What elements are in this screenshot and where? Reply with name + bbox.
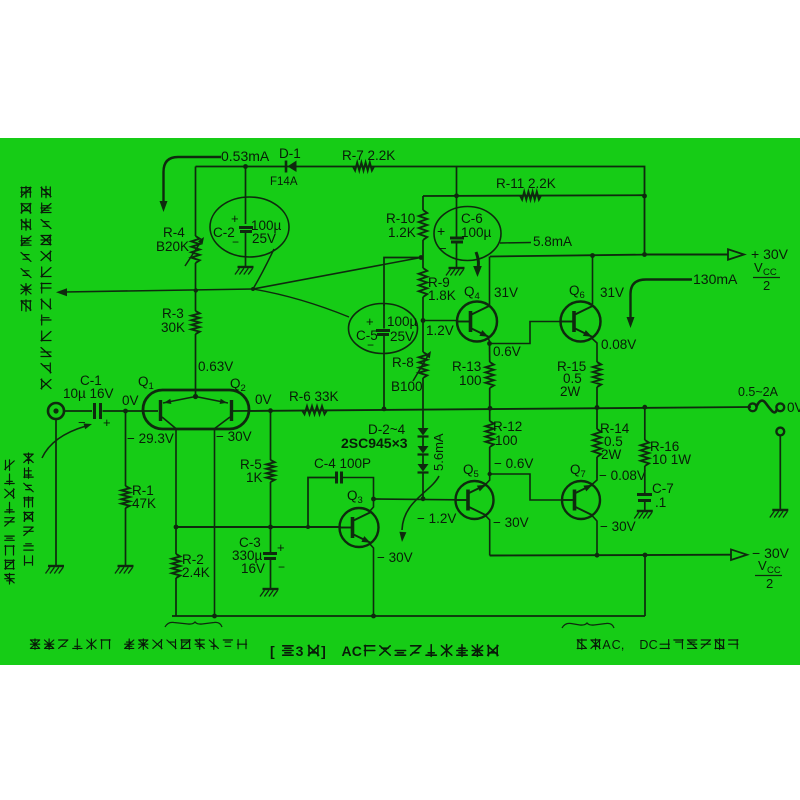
svg-text:+: + (103, 415, 111, 430)
svg-text:− 0.08V: − 0.08V (599, 468, 646, 483)
svg-text:5.6mA: 5.6mA (431, 433, 446, 471)
svg-text:100µ: 100µ (387, 314, 418, 329)
svg-text:5.8mA: 5.8mA (533, 234, 572, 249)
svg-text:CC: CC (763, 267, 777, 278)
svg-text:− 0.6V: − 0.6V (494, 456, 533, 471)
svg-text:2W: 2W (560, 384, 581, 399)
svg-text:D: D (639, 638, 648, 652)
svg-text:1.2V: 1.2V (426, 323, 454, 338)
svg-text:0.08V: 0.08V (601, 337, 636, 352)
svg-text:2SC945×3: 2SC945×3 (341, 435, 408, 451)
svg-text:0V: 0V (255, 392, 272, 407)
svg-text:−: − (439, 241, 447, 256)
svg-text:10 1W: 10 1W (652, 452, 691, 467)
svg-text:3: 3 (296, 643, 304, 659)
svg-text:C: C (352, 643, 362, 659)
svg-text:0V: 0V (122, 393, 139, 408)
svg-text:B100: B100 (391, 379, 423, 394)
svg-text:C-6: C-6 (461, 211, 483, 226)
svg-text:−: − (367, 338, 374, 352)
svg-text:R-6 33K: R-6 33K (289, 389, 339, 404)
svg-text:1K: 1K (246, 470, 263, 485)
svg-text:+: + (437, 223, 445, 239)
svg-text:31V: 31V (494, 285, 518, 300)
svg-text:R-3: R-3 (162, 306, 184, 321)
svg-text:C-4 100P: C-4 100P (314, 456, 371, 471)
svg-text:31V: 31V (600, 285, 624, 300)
svg-text:25V: 25V (390, 329, 414, 344)
svg-text:C: C (649, 638, 658, 652)
svg-text:2: 2 (766, 576, 773, 591)
svg-text:25V: 25V (252, 231, 276, 246)
svg-text:− 1.2V: − 1.2V (417, 511, 456, 526)
svg-text:R-4: R-4 (163, 225, 185, 240)
svg-text:47K: 47K (132, 496, 156, 511)
svg-text:V: V (754, 260, 763, 275)
svg-text:2W: 2W (601, 447, 622, 462)
svg-text:R-8: R-8 (392, 355, 414, 370)
svg-text:100: 100 (495, 433, 518, 448)
svg-text:− 30V: − 30V (493, 515, 529, 530)
svg-text:130mA: 130mA (693, 271, 738, 287)
svg-text:C-7: C-7 (652, 481, 674, 496)
svg-text:16V: 16V (241, 561, 265, 576)
svg-text:C: C (612, 638, 621, 652)
svg-text:+: + (231, 211, 239, 226)
svg-text:CC: CC (767, 565, 781, 576)
svg-text:2: 2 (763, 278, 770, 293)
svg-text:1.8K: 1.8K (428, 288, 456, 303)
svg-text:]: ] (321, 643, 326, 659)
svg-text:+: + (277, 540, 285, 555)
svg-text:− 29.3V: − 29.3V (127, 431, 174, 446)
svg-text:− 30V: − 30V (600, 519, 636, 534)
svg-text:+: + (366, 314, 374, 329)
svg-text:2.4K: 2.4K (182, 565, 210, 580)
svg-text:0.53mA: 0.53mA (221, 148, 270, 164)
svg-text:A: A (342, 643, 352, 659)
svg-text:− 30V: − 30V (216, 429, 252, 444)
svg-text:30K: 30K (161, 320, 185, 335)
svg-text:0.63V: 0.63V (198, 359, 233, 374)
svg-text:R-10: R-10 (386, 211, 415, 226)
svg-text:R-12: R-12 (493, 419, 522, 434)
svg-text:[: [ (270, 643, 275, 659)
svg-text:R-11 2.2K: R-11 2.2K (496, 176, 556, 191)
svg-text:100: 100 (459, 373, 482, 388)
svg-text:B20K: B20K (156, 239, 189, 254)
svg-text:R-13: R-13 (452, 359, 481, 374)
svg-text:1.2K: 1.2K (388, 225, 416, 240)
svg-text:D-1: D-1 (279, 146, 301, 161)
svg-text:.1: .1 (655, 495, 666, 510)
svg-text:0.6V: 0.6V (493, 344, 521, 359)
svg-text:A: A (602, 638, 611, 652)
svg-text:0.5~2A: 0.5~2A (738, 385, 779, 399)
svg-text:V: V (758, 558, 767, 573)
svg-text:100µ: 100µ (461, 225, 492, 240)
svg-text:−: − (278, 560, 285, 574)
svg-text:0V: 0V (787, 400, 800, 415)
svg-text:− 30V: − 30V (377, 550, 413, 565)
svg-text:,: , (621, 638, 624, 652)
svg-text:−: − (232, 235, 239, 249)
svg-text:R-7 2.2K: R-7 2.2K (342, 148, 395, 163)
svg-text:F14A: F14A (270, 176, 298, 188)
svg-text:10µ 16V: 10µ 16V (63, 386, 114, 401)
